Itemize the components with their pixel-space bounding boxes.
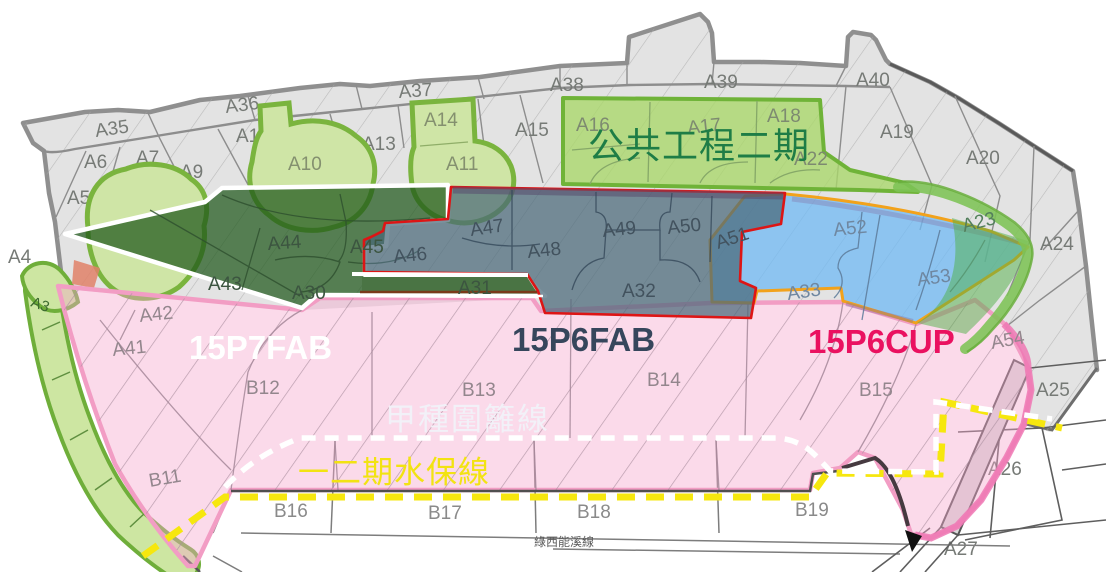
- svg-text:A52: A52: [832, 217, 868, 241]
- svg-text:A41: A41: [111, 337, 147, 361]
- svg-text:甲種圍籬線: 甲種圍籬線: [385, 402, 550, 437]
- svg-text:B12: B12: [246, 378, 280, 399]
- svg-text:A43: A43: [208, 274, 242, 295]
- svg-text:A11: A11: [446, 154, 478, 175]
- svg-text:B16: B16: [274, 501, 308, 522]
- svg-text:A44: A44: [267, 232, 303, 255]
- svg-text:A48: A48: [526, 239, 562, 263]
- svg-text:A25: A25: [1036, 380, 1070, 401]
- svg-text:A24: A24: [1040, 234, 1074, 255]
- svg-text:A14: A14: [424, 110, 458, 131]
- svg-text:A4: A4: [8, 247, 32, 268]
- svg-text:15P6CUP: 15P6CUP: [808, 323, 955, 360]
- svg-text:A36: A36: [224, 93, 260, 118]
- svg-text:公共工程二期: 公共工程二期: [588, 125, 810, 166]
- svg-text:A31: A31: [458, 278, 492, 299]
- svg-text:A50: A50: [666, 215, 702, 239]
- svg-text:A19: A19: [880, 122, 914, 143]
- svg-text:A30: A30: [292, 283, 326, 304]
- svg-text:B17: B17: [428, 503, 462, 524]
- svg-text:A6: A6: [84, 152, 107, 173]
- svg-text:A20: A20: [966, 148, 1000, 169]
- svg-text:A18: A18: [767, 106, 801, 127]
- svg-text:A15: A15: [515, 120, 549, 141]
- svg-text:A39: A39: [704, 72, 738, 93]
- svg-text:A40: A40: [856, 70, 890, 91]
- svg-text:綠西能溪線: 綠西能溪線: [534, 534, 594, 549]
- svg-text:B13: B13: [462, 380, 496, 401]
- svg-text:一二期水保線: 一二期水保線: [298, 455, 490, 490]
- svg-text:B15: B15: [859, 380, 893, 401]
- svg-text:15P7FAB: 15P7FAB: [189, 329, 332, 366]
- svg-text:A38: A38: [550, 75, 584, 96]
- svg-text:B14: B14: [647, 370, 681, 391]
- svg-text:A45: A45: [350, 237, 384, 258]
- svg-text:B19: B19: [795, 500, 829, 521]
- svg-text:A42: A42: [138, 303, 174, 327]
- svg-text:B18: B18: [577, 502, 611, 523]
- svg-text:A32: A32: [622, 281, 656, 302]
- svg-text:A10: A10: [288, 154, 322, 175]
- svg-text:15P6FAB: 15P6FAB: [512, 321, 655, 358]
- svg-text:A27: A27: [944, 539, 978, 560]
- svg-text:A49: A49: [601, 218, 637, 242]
- svg-text:A46: A46: [392, 244, 428, 268]
